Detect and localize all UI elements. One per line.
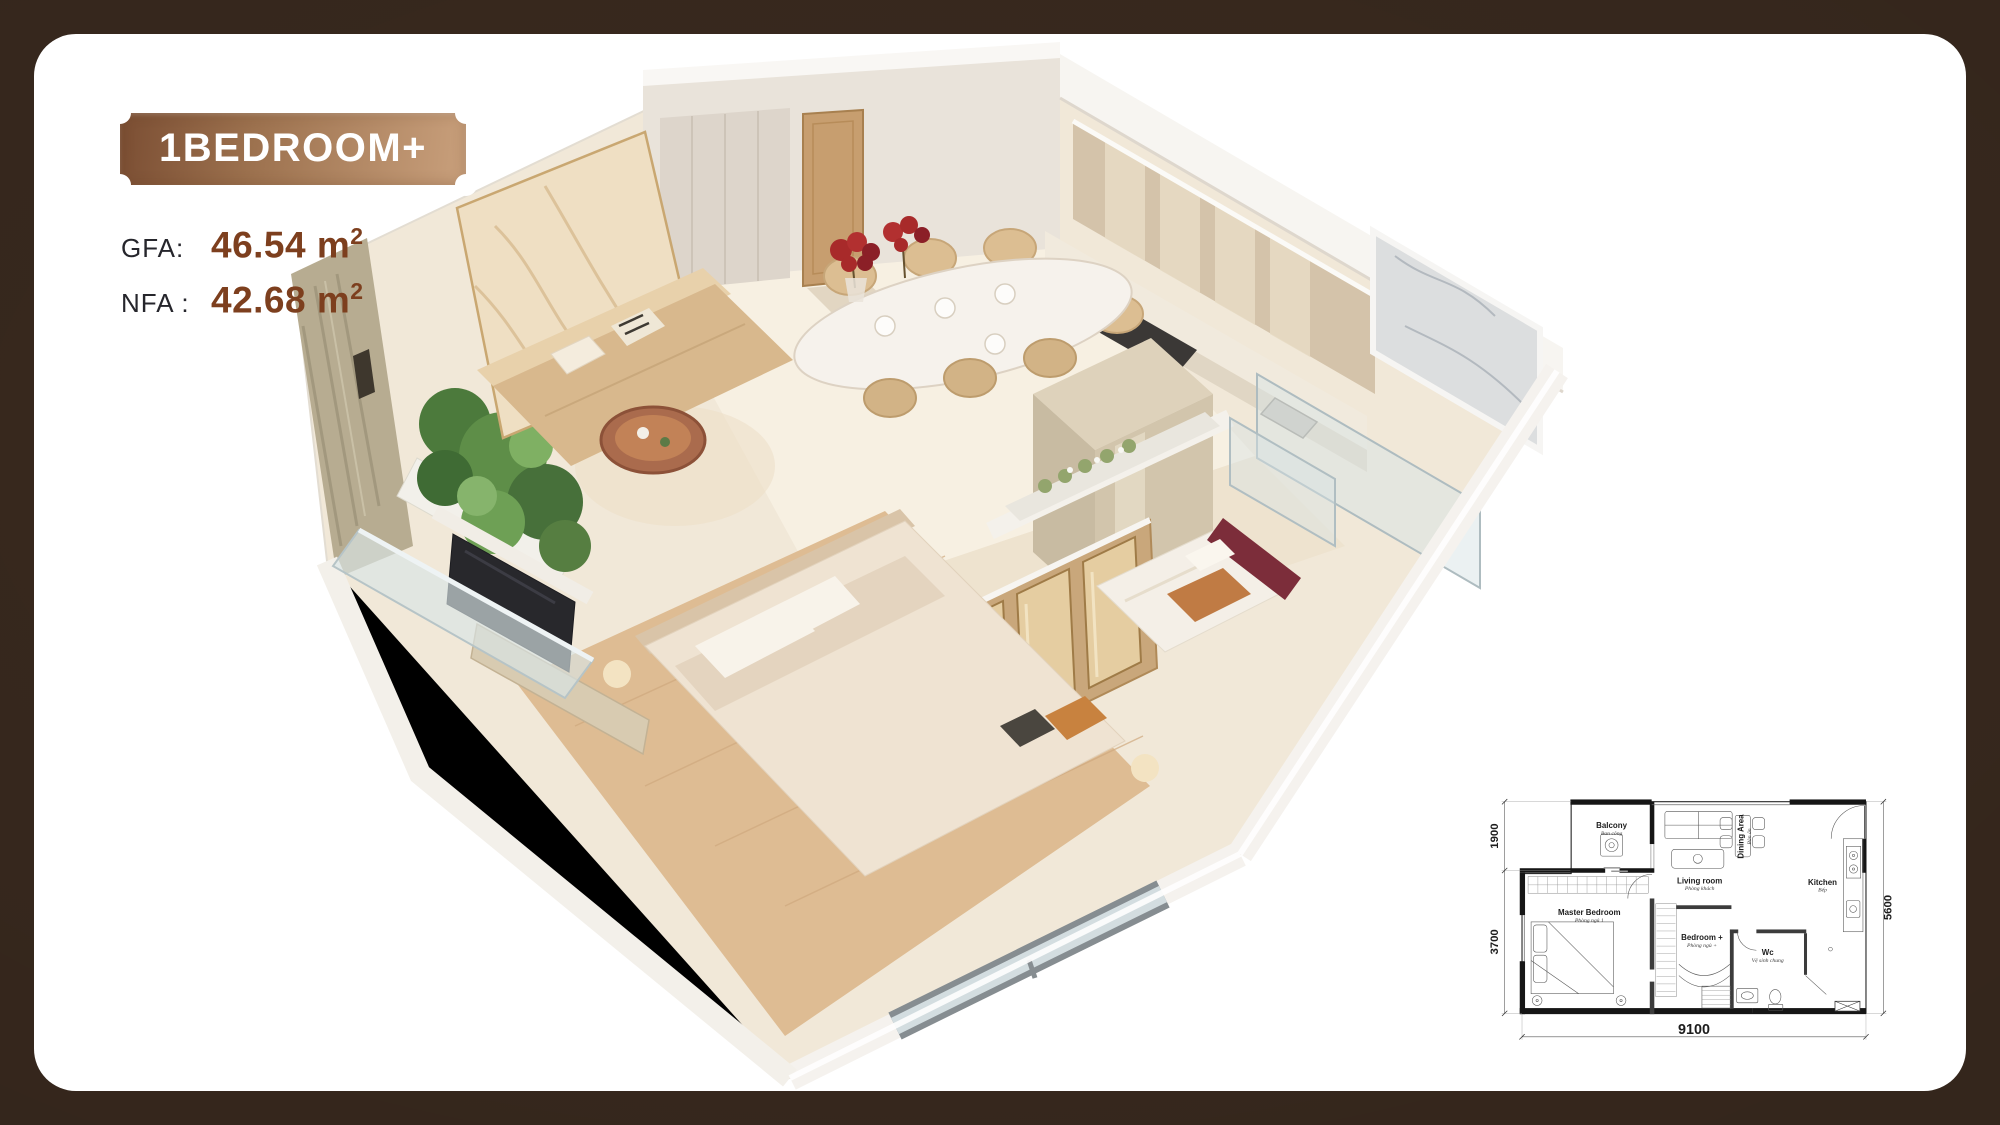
plan-label-master: Master Bedroom bbox=[1558, 908, 1621, 917]
plan-label-kitchen: Kitchen bbox=[1808, 878, 1837, 887]
nfa-row: NFA : 42.68 m2 bbox=[121, 278, 364, 321]
gfa-value: 46.54 m2 bbox=[211, 223, 364, 266]
dim-master-depth: 3700 bbox=[1489, 929, 1501, 954]
svg-text:Phòng khách: Phòng khách bbox=[1684, 886, 1715, 892]
badge-notch bbox=[109, 102, 131, 124]
dim-total-depth: 5600 bbox=[1883, 895, 1895, 920]
svg-text:Bếp: Bếp bbox=[1818, 887, 1827, 894]
svg-text:Phòng ngủ +: Phòng ngủ + bbox=[1686, 943, 1717, 949]
unit-type-badge: 1BEDROOM+ bbox=[120, 113, 466, 185]
badge-notch bbox=[109, 174, 131, 196]
plan-label-balcony: Balcony bbox=[1596, 821, 1627, 830]
badge-notch bbox=[455, 102, 477, 124]
badge-label: 1BEDROOM+ bbox=[159, 128, 427, 168]
floorplan-3d-render bbox=[245, 26, 1585, 1101]
badge-notch bbox=[455, 174, 477, 196]
page-background: { "colors":{ "background":"#3a2a1f", "ca… bbox=[0, 0, 2000, 1125]
svg-text:Phòng ngủ 1: Phòng ngủ 1 bbox=[1574, 918, 1604, 924]
svg-text:Vệ sinh chung: Vệ sinh chung bbox=[1752, 958, 1784, 964]
gfa-label: GFA: bbox=[121, 233, 211, 264]
plan-label-dining: Dining Area bbox=[1737, 814, 1746, 859]
nfa-value: 42.68 m2 bbox=[211, 278, 364, 321]
plan-label-wc: Wc bbox=[1762, 948, 1774, 957]
dim-total-width: 9100 bbox=[1678, 1022, 1710, 1038]
coffee-table bbox=[601, 407, 705, 473]
dim-balcony-depth: 1900 bbox=[1489, 824, 1501, 849]
shower-tray bbox=[1835, 1001, 1860, 1011]
svg-text:Bàn ăn: Bàn ăn bbox=[1747, 828, 1753, 844]
floorplan-2d: 1900 3700 5600 9100 Balcony Ban công Liv… bbox=[1488, 788, 1900, 1080]
plan-label-living: Living room bbox=[1677, 876, 1722, 885]
nfa-label: NFA : bbox=[121, 288, 211, 319]
svg-text:Ban công: Ban công bbox=[1601, 831, 1623, 837]
gfa-row: GFA: 46.54 m2 bbox=[121, 223, 364, 266]
plan-label-bedroom-plus: Bedroom + bbox=[1681, 933, 1723, 942]
